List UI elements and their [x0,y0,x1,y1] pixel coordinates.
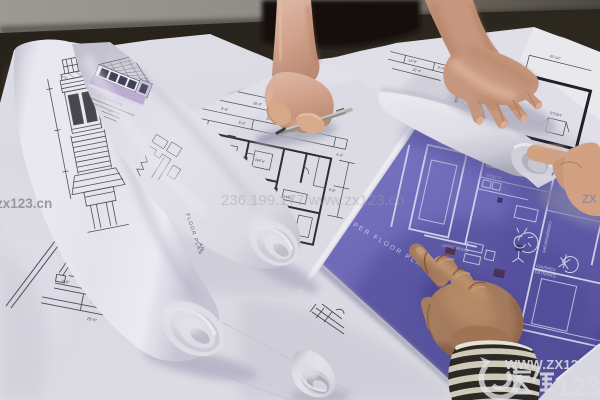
svg-text:123: 123 [556,372,600,400]
svg-text:ZX: ZX [582,194,597,206]
svg-text:zx123.cn: zx123.cn [0,196,52,211]
svg-text:236.199.177/www.zx123.cn: 236.199.177/www.zx123.cn [221,192,404,209]
svg-text:WWW.ZX123.CN: WWW.ZX123.CN [505,357,600,372]
